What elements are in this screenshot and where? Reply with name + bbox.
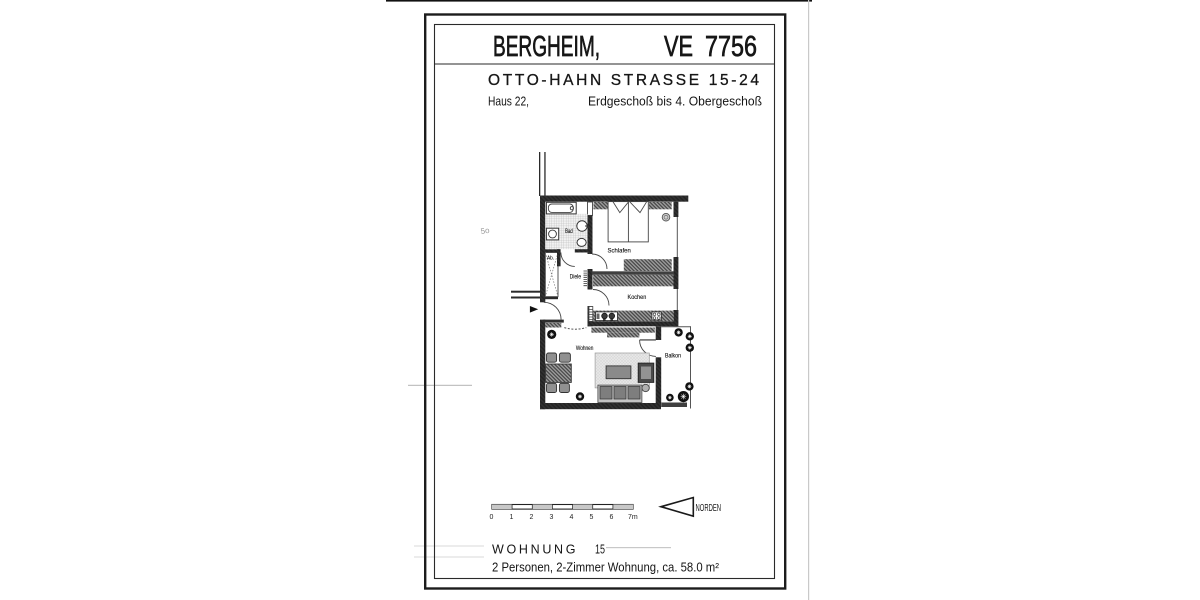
svg-text:2: 2 (530, 514, 534, 521)
svg-text:VE: VE (664, 31, 693, 63)
svg-text:NORDEN: NORDEN (696, 502, 722, 514)
svg-text:0: 0 (490, 514, 494, 521)
svg-text:Haus 22,: Haus 22, (488, 94, 529, 109)
svg-text:Ab.: Ab. (547, 255, 554, 261)
svg-text:15: 15 (595, 543, 605, 557)
svg-text:7756: 7756 (705, 31, 757, 63)
svg-text:5: 5 (590, 514, 594, 521)
svg-text:2 Personen, 2-Zimmer Wohnung,: 2 Personen, 2-Zimmer Wohnung, ca. 58.0 m… (492, 561, 719, 575)
svg-text:4: 4 (570, 514, 574, 521)
svg-text:1: 1 (510, 514, 514, 521)
svg-text:3: 3 (550, 514, 554, 521)
svg-text:Schlafen: Schlafen (608, 248, 632, 255)
svg-text:Wohnen: Wohnen (576, 345, 594, 352)
svg-text:5o: 5o (480, 226, 491, 236)
svg-text:6: 6 (610, 514, 614, 521)
svg-text:7m: 7m (628, 514, 638, 521)
svg-text:Bad: Bad (565, 229, 573, 235)
svg-text:Diele: Diele (570, 274, 582, 281)
svg-text:BERGHEIM,: BERGHEIM, (493, 31, 600, 63)
svg-text:Balkon: Balkon (665, 353, 681, 360)
svg-text:Erdgeschoß bis 4. Obergeschoß: Erdgeschoß bis 4. Obergeschoß (588, 94, 762, 109)
svg-text:Kochen: Kochen (628, 294, 647, 301)
